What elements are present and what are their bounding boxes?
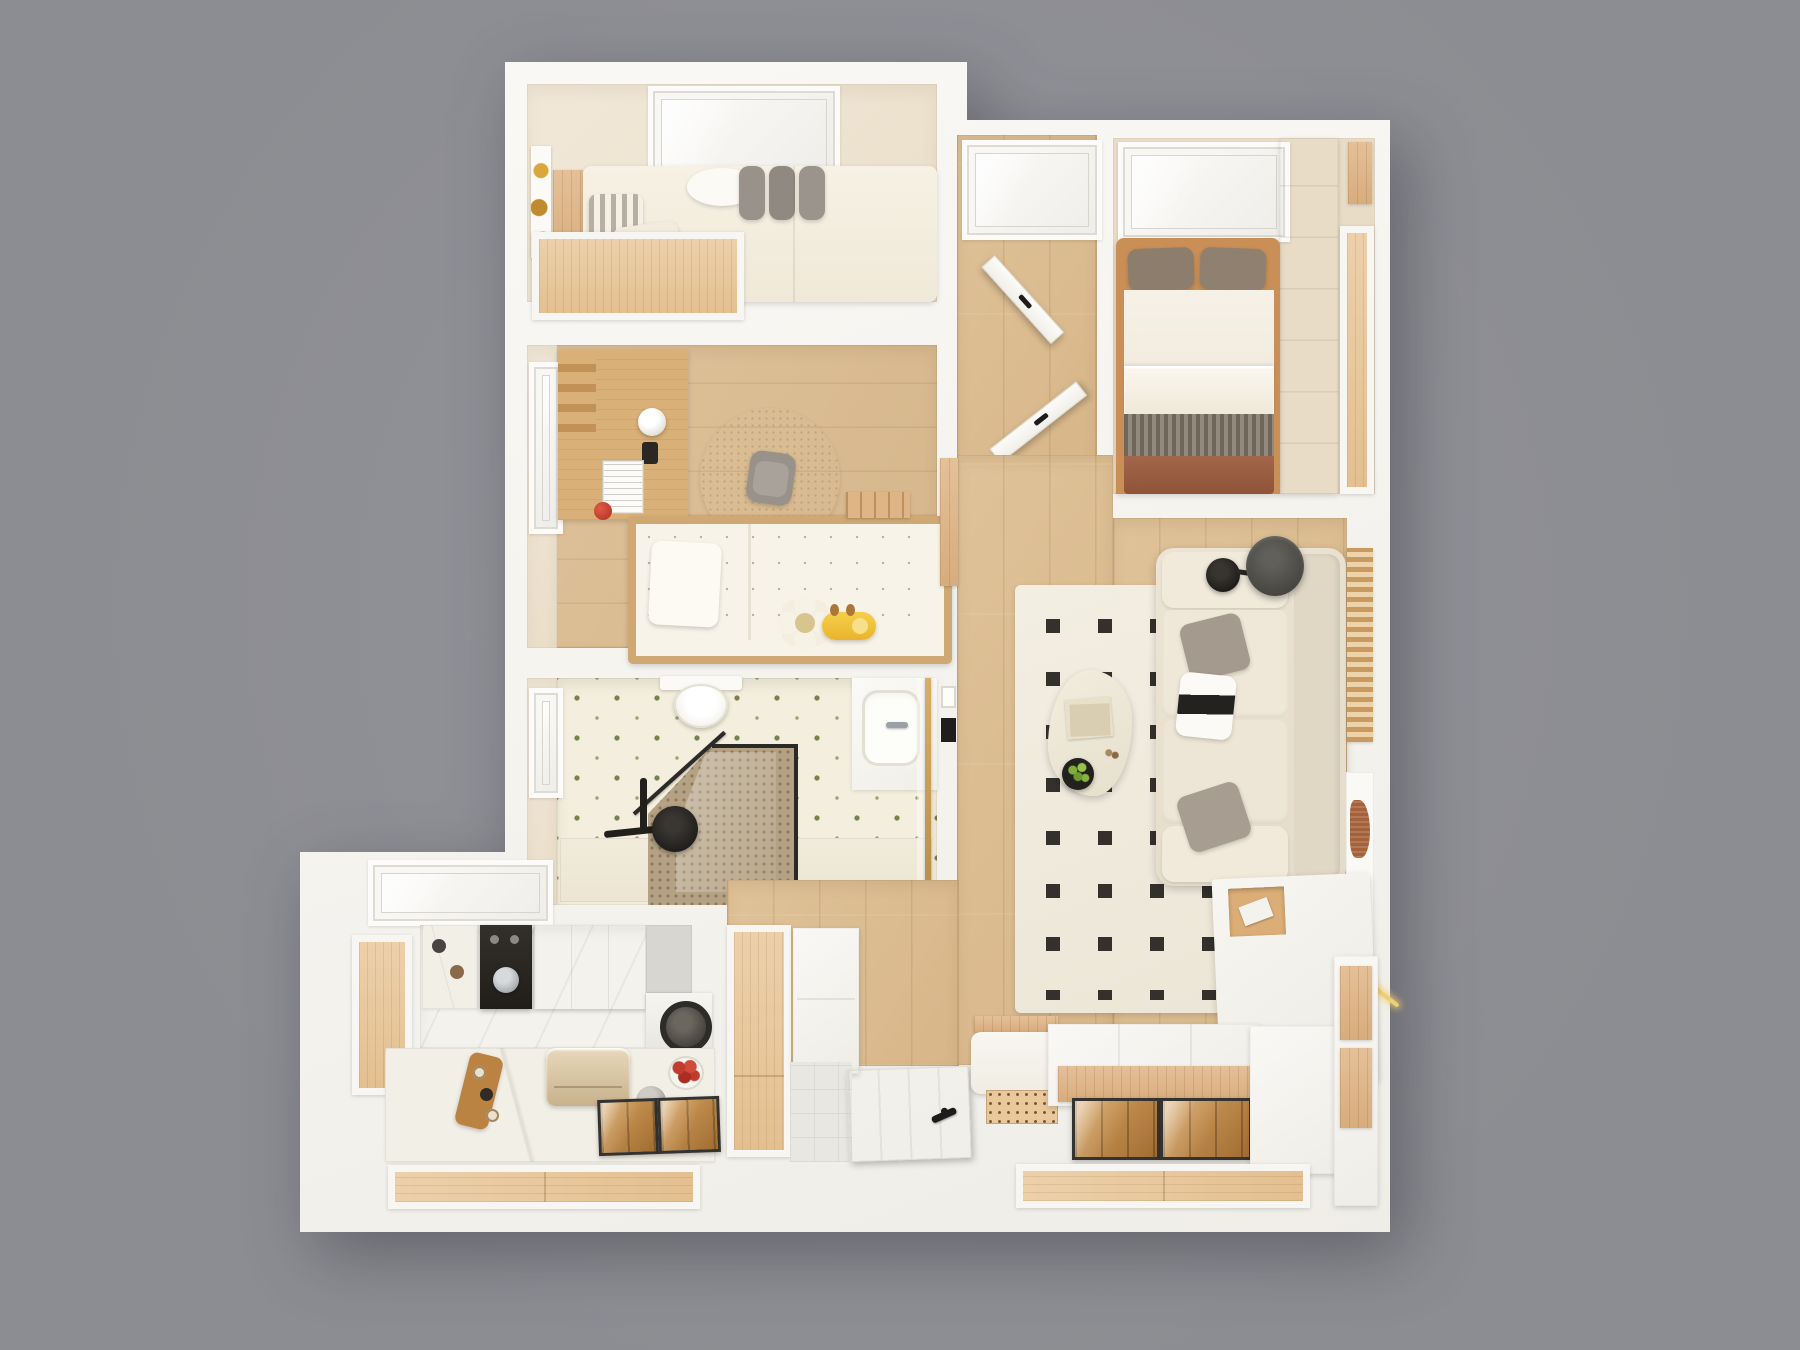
kitchen-drawer-front — [388, 1165, 700, 1209]
bedroom-second-bed — [1116, 238, 1280, 494]
bathroom-window — [529, 688, 563, 798]
chair-seat-line — [752, 460, 790, 498]
taupe-pillow — [1199, 247, 1266, 291]
sliding-door-glass — [917, 678, 925, 905]
cabinet-wood — [734, 932, 784, 1150]
front-door — [846, 1066, 971, 1162]
folded-duvet — [1124, 366, 1274, 414]
bw-throw-pillow — [1175, 671, 1237, 741]
grey-cushion — [769, 166, 795, 220]
bedroom-second-window — [1118, 142, 1290, 242]
appliance-knob — [510, 935, 519, 944]
drawer-seam — [544, 1172, 546, 1202]
shower-head — [652, 806, 698, 852]
kitchen-tall-unit — [422, 925, 478, 1009]
coffee-machine-disc — [493, 967, 519, 993]
potted-plant — [1062, 758, 1094, 790]
shoe-cabinet — [793, 928, 859, 1074]
desk-shelf — [558, 352, 596, 432]
door-handle — [1018, 294, 1032, 309]
bench-backrest — [974, 1016, 1058, 1032]
grey-cushion — [739, 166, 765, 220]
rust-bed-skirt — [1124, 456, 1274, 494]
platform-right-section — [1250, 1026, 1346, 1174]
stacked-books — [1069, 703, 1110, 736]
kids-pillow — [648, 540, 722, 628]
sliding-door-brass-frame — [925, 678, 931, 905]
shower-glass-frame-top — [712, 744, 798, 748]
sideboard-open-shelf — [1228, 886, 1286, 936]
sink-tray — [597, 1098, 659, 1156]
light-switch — [941, 686, 956, 708]
shower-glass-frame-side — [794, 744, 798, 902]
floor-plan-render — [0, 0, 1800, 1350]
shower-pipe — [640, 778, 647, 830]
table-crumbs — [1104, 748, 1120, 760]
column-wood-panel — [1340, 966, 1372, 1040]
apartment-plan — [0, 0, 1800, 1350]
wall-cabinet-face — [940, 458, 958, 586]
drawer-seam — [1163, 1171, 1165, 1201]
bench-cushion — [971, 1032, 1059, 1094]
entry-threshold-tiles — [790, 1062, 852, 1162]
jar — [450, 965, 464, 979]
artwork-brown-shape — [1350, 800, 1370, 858]
duvet-fold — [793, 166, 795, 302]
washer-door — [660, 1001, 712, 1053]
cabinet-seam — [734, 1075, 784, 1077]
glass-display-case — [1160, 1098, 1252, 1160]
vanity-faucet — [886, 722, 908, 728]
bed-sheet — [1124, 290, 1274, 368]
grey-cushion — [799, 166, 825, 220]
door-handle — [1033, 412, 1049, 426]
cylinder-side-table — [1246, 536, 1304, 596]
wood-slat-wall-panel — [1347, 548, 1373, 742]
toilet — [660, 676, 742, 728]
platform-wood-front — [1058, 1066, 1256, 1102]
giraffe-ear — [846, 604, 855, 616]
kitchen-olive-cabinets — [534, 925, 646, 1009]
entry-tall-cabinet — [727, 925, 791, 1157]
kitchen-gray-backsplash — [646, 925, 692, 993]
bread-box-lid-line — [554, 1086, 622, 1088]
desk-gadget — [642, 442, 658, 464]
spice-jar — [473, 1066, 486, 1079]
red-toy — [594, 502, 612, 520]
platform-drawer-front — [1016, 1164, 1310, 1208]
spice-jar — [486, 1109, 499, 1122]
tweed-blanket — [1124, 414, 1274, 458]
desk-lamp — [638, 408, 666, 436]
taupe-pillow — [1127, 247, 1194, 291]
magazine-rack — [846, 492, 910, 518]
duvet-fold — [748, 524, 751, 640]
sofa — [1156, 548, 1346, 886]
corridor-window — [962, 140, 1102, 240]
bedroom-second-wardrobe — [1280, 138, 1338, 494]
appliance-knob — [490, 935, 499, 944]
closet-wood-front — [539, 239, 737, 313]
plant-leaves — [1065, 761, 1091, 787]
wall-screen — [941, 718, 956, 742]
flower-center — [795, 613, 815, 633]
cabinet-seam — [797, 998, 855, 1000]
bread-box — [546, 1048, 630, 1106]
giraffe-ear — [830, 604, 839, 616]
bedroom-second-closet-panel — [1340, 226, 1374, 494]
kitchen-skylight — [368, 860, 553, 926]
sofa-back — [1294, 554, 1340, 880]
vanity-basin — [862, 690, 920, 766]
corner-wood-panel — [1348, 142, 1372, 204]
bedroom-main-closet — [532, 232, 744, 320]
floor-lamp — [1206, 558, 1240, 592]
right-column-cabinet — [1334, 956, 1378, 1206]
column-wood-panel — [1340, 1048, 1372, 1128]
spice-jar — [480, 1088, 493, 1101]
toilet-bowl — [674, 684, 728, 728]
washing-machine — [646, 993, 712, 1048]
double-sink-trays — [597, 1096, 719, 1152]
glass-display-case — [1072, 1098, 1160, 1160]
sink-tray — [657, 1096, 721, 1154]
red-fruits — [672, 1060, 700, 1086]
shelf-book — [1238, 897, 1273, 926]
closet-wood — [1347, 233, 1367, 487]
kids-desk — [558, 350, 688, 520]
desk-chair — [745, 449, 798, 507]
giraffe-plush — [822, 604, 878, 644]
jar — [432, 939, 446, 953]
kids-bed — [628, 516, 952, 664]
giraffe-face — [852, 618, 868, 634]
coffee-appliance-tower — [480, 925, 532, 1009]
